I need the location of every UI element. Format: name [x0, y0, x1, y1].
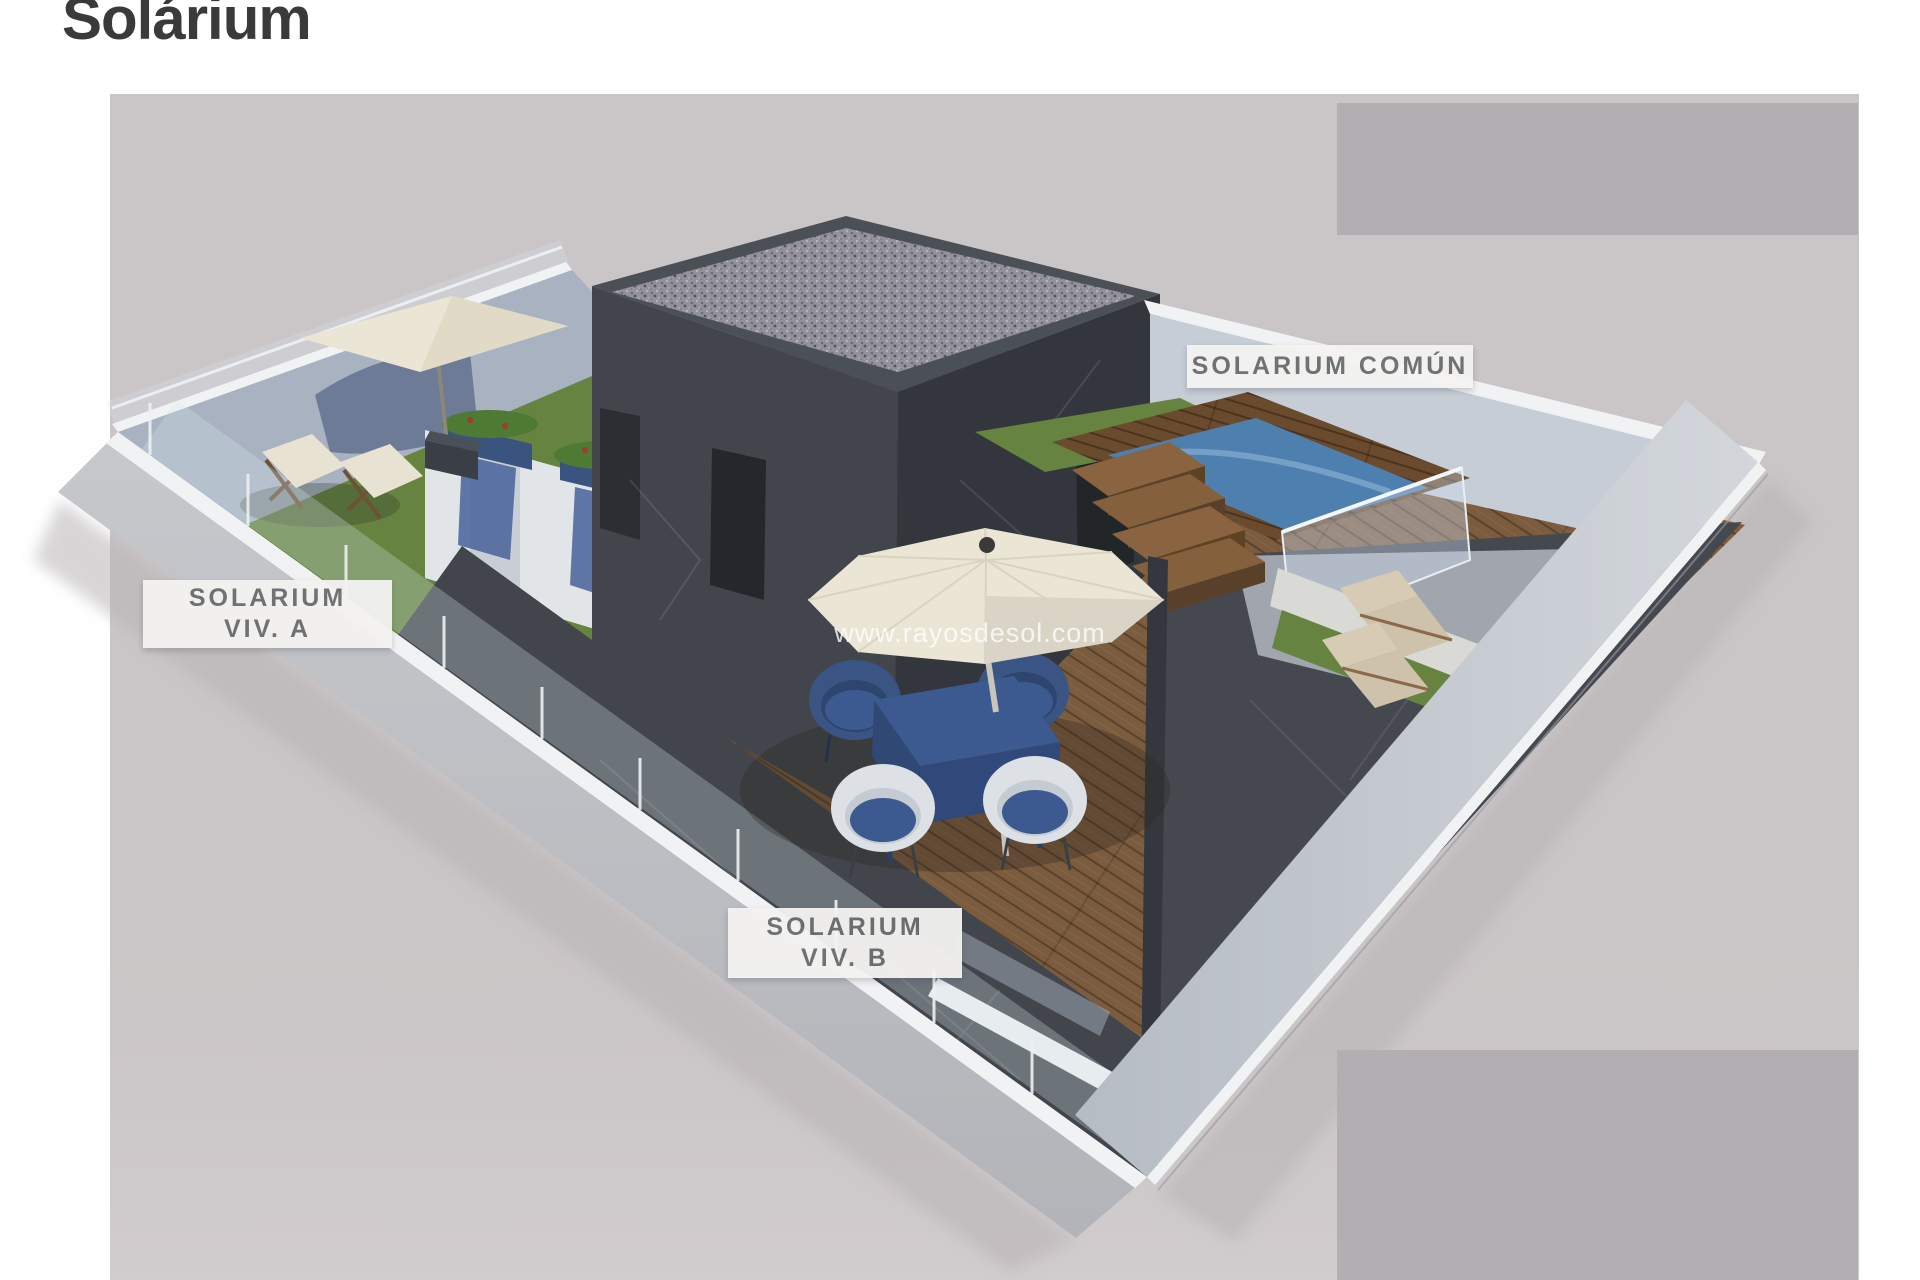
label-text: SOLARIUM COMÚN	[1192, 351, 1469, 382]
building-door	[710, 448, 766, 600]
label-text: VIV. A	[224, 614, 311, 645]
label-text: VIV. B	[801, 943, 889, 974]
watermark: www.rayosdesol.com	[790, 618, 1150, 649]
page: Solárium	[0, 0, 1920, 1280]
label-solarium-comun: SOLARIUM COMÚN	[1187, 345, 1473, 388]
label-solarium-viv-a: SOLARIUM VIV. A	[143, 580, 392, 648]
label-solarium-viv-b: SOLARIUM VIV. B	[728, 908, 962, 978]
redaction-box-top	[1337, 103, 1858, 235]
redaction-box-bottom	[1337, 1050, 1858, 1280]
label-text: SOLARIUM	[189, 583, 346, 614]
label-text: SOLARIUM	[766, 912, 923, 943]
